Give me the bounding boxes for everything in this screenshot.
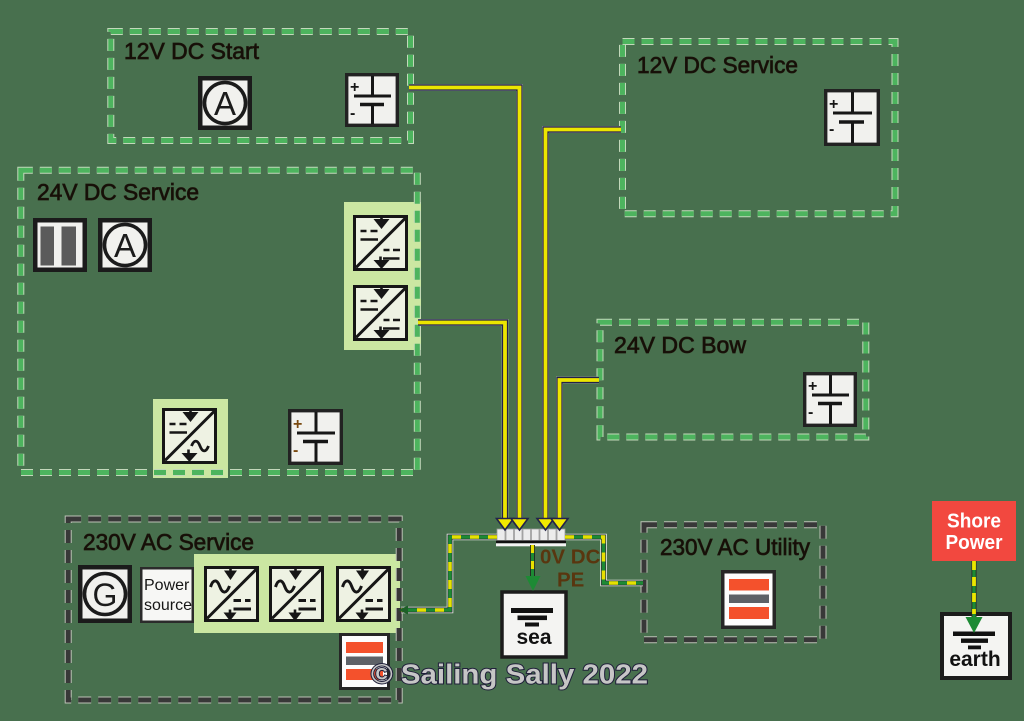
svg-text:0V DC: 0V DC bbox=[540, 546, 601, 569]
svg-text:+: + bbox=[829, 96, 838, 113]
svg-text:A: A bbox=[214, 85, 236, 122]
svg-text:+: + bbox=[293, 416, 302, 433]
svg-text:-: - bbox=[808, 404, 813, 421]
svg-text:source: source bbox=[144, 597, 192, 614]
svg-text:© Sailing Sally 2022: © Sailing Sally 2022 bbox=[371, 659, 648, 690]
svg-text:Power: Power bbox=[144, 577, 190, 594]
svg-text:24V DC Service: 24V DC Service bbox=[37, 179, 199, 205]
svg-text:-: - bbox=[829, 121, 834, 138]
svg-text:sea: sea bbox=[516, 626, 551, 649]
svg-text:earth: earth bbox=[949, 648, 1000, 671]
svg-text:+: + bbox=[808, 378, 817, 395]
svg-text:PE: PE bbox=[557, 569, 584, 592]
svg-text:230V AC Utility: 230V AC Utility bbox=[660, 534, 810, 560]
svg-text:G: G bbox=[93, 577, 118, 613]
svg-text:Power: Power bbox=[946, 532, 1003, 554]
svg-text:Shore: Shore bbox=[947, 511, 1001, 533]
svg-text:12V DC Service: 12V DC Service bbox=[637, 52, 798, 78]
svg-text:12V DC Start: 12V DC Start bbox=[124, 38, 260, 64]
svg-text:+: + bbox=[350, 79, 359, 96]
svg-text:A: A bbox=[114, 227, 136, 264]
svg-text:-: - bbox=[350, 105, 355, 122]
svg-text:-: - bbox=[293, 442, 298, 459]
svg-text:24V DC Bow: 24V DC Bow bbox=[614, 332, 746, 358]
svg-text:230V AC Service: 230V AC Service bbox=[83, 529, 254, 555]
